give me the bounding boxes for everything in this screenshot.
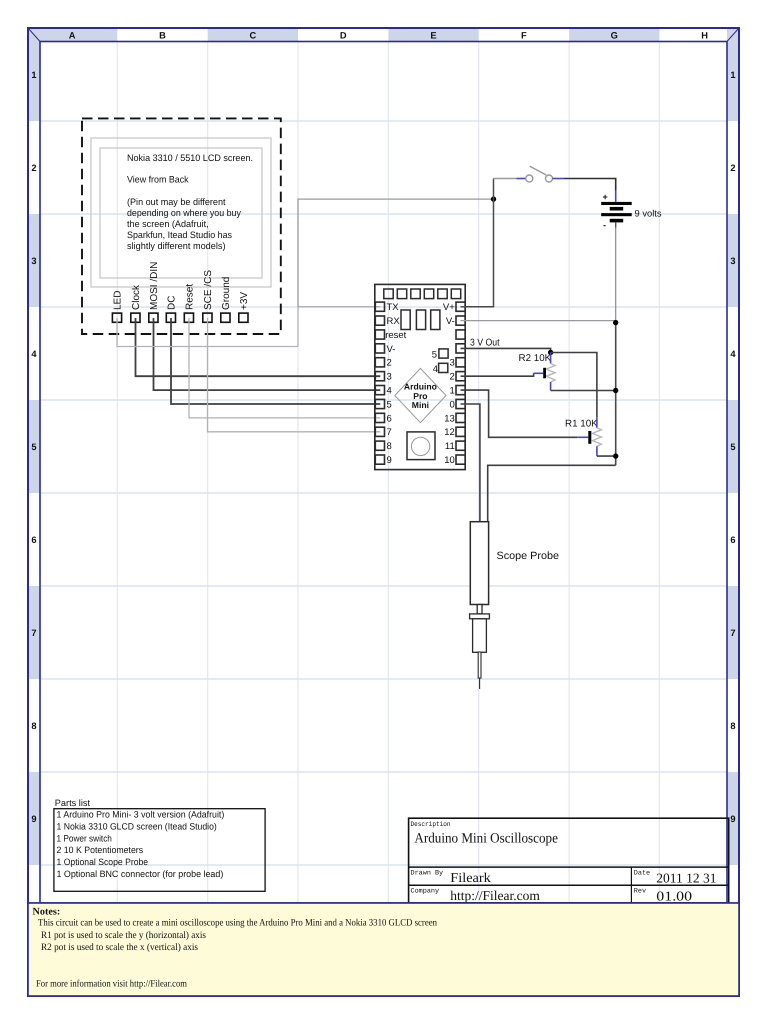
svg-text:13: 13 — [444, 413, 455, 424]
svg-text:5: 5 — [387, 399, 392, 410]
svg-text:9 volts: 9 volts — [635, 208, 662, 219]
svg-text:V-: V- — [446, 316, 455, 327]
svg-text:Mini: Mini — [412, 400, 429, 410]
svg-text:View from Back: View from Back — [127, 174, 189, 185]
svg-text:A: A — [69, 31, 76, 41]
svg-text:Parts list: Parts list — [55, 798, 91, 808]
svg-text:3: 3 — [730, 256, 735, 266]
svg-text:7: 7 — [730, 628, 735, 638]
svg-text:3: 3 — [387, 372, 392, 383]
svg-text:R2 10K: R2 10K — [519, 353, 552, 364]
svg-text:+3V: +3V — [239, 292, 250, 310]
svg-text:4: 4 — [433, 364, 438, 375]
svg-text:6: 6 — [387, 413, 392, 424]
svg-text:4: 4 — [31, 349, 37, 359]
svg-text:5: 5 — [730, 442, 735, 452]
svg-text:01.00: 01.00 — [656, 888, 692, 903]
svg-text:11: 11 — [445, 441, 455, 452]
svg-text:6: 6 — [31, 535, 36, 545]
svg-text:Fileark: Fileark — [450, 870, 491, 885]
svg-text:Date: Date — [634, 870, 650, 878]
svg-text:F: F — [521, 31, 527, 41]
svg-text:LED: LED — [113, 291, 124, 310]
svg-text:2 10 K Potentiometers: 2 10 K Potentiometers — [57, 845, 144, 855]
svg-text:1 Arduino Pro Mini- 3 volt ve: 1 Arduino Pro Mini- 3 volt version (Adaf… — [57, 810, 225, 820]
svg-text:0: 0 — [450, 399, 455, 410]
svg-text:1 Optional BNC connector (for: 1 Optional BNC connector (for probe lead… — [57, 869, 224, 879]
svg-text:Ground: Ground — [221, 277, 232, 310]
svg-text:(Pin out may be different: (Pin out may be different — [127, 196, 226, 207]
svg-text:2: 2 — [387, 358, 392, 369]
svg-text:7: 7 — [387, 427, 392, 438]
svg-text:Nokia 3310 / 5510 LCD screen.: Nokia 3310 / 5510 LCD screen. — [127, 152, 253, 163]
svg-text:Sparkfun, Itead Studio has: Sparkfun, Itead Studio has — [127, 229, 232, 240]
svg-text:1: 1 — [730, 70, 735, 80]
svg-text:D: D — [340, 31, 347, 41]
svg-text:R1 10K: R1 10K — [565, 418, 598, 429]
svg-text:5: 5 — [31, 442, 36, 452]
svg-text:4: 4 — [387, 386, 392, 397]
svg-text:R2 pot is used to scale the x: R2 pot is used to scale the x (vertical)… — [41, 942, 198, 953]
svg-text:3: 3 — [31, 256, 36, 266]
svg-text:Clock: Clock — [131, 284, 142, 310]
svg-text:G: G — [611, 31, 618, 41]
svg-text:V+: V+ — [443, 302, 455, 313]
svg-text:1 Power switch: 1 Power switch — [57, 833, 112, 843]
svg-text:2: 2 — [730, 163, 735, 173]
svg-text:TX: TX — [387, 302, 400, 313]
svg-text:Company: Company — [411, 888, 440, 896]
svg-text:2: 2 — [31, 163, 36, 173]
svg-text:1: 1 — [450, 386, 455, 397]
svg-text:10: 10 — [444, 455, 455, 466]
svg-text:-: - — [603, 220, 606, 230]
svg-text:1 Nokia 3310 GLCD screen (Ite: 1 Nokia 3310 GLCD screen (Itead Studio) — [57, 821, 217, 831]
svg-text:9: 9 — [730, 814, 735, 824]
svg-text:For more information visit htt: For more information visit http://Filear… — [36, 979, 187, 990]
svg-text:Arduino Mini Oscilloscope: Arduino Mini Oscilloscope — [414, 831, 558, 847]
svg-text:4: 4 — [730, 349, 736, 359]
svg-text:+: + — [603, 192, 608, 202]
svg-text:MOSI /DIN: MOSI /DIN — [149, 262, 160, 310]
svg-text:Scope Probe: Scope Probe — [497, 550, 560, 562]
svg-text:Rev: Rev — [634, 888, 646, 896]
svg-text:8: 8 — [31, 721, 36, 731]
svg-text:1 Optional Scope Probe: 1 Optional Scope Probe — [57, 857, 149, 867]
svg-text:Drawn By: Drawn By — [411, 870, 444, 878]
svg-text:the screen (Adafruit,: the screen (Adafruit, — [127, 218, 209, 229]
svg-text:3: 3 — [450, 358, 455, 369]
svg-text:depending on where you buy: depending on where you buy — [127, 207, 241, 218]
svg-text:This circuit can be used to cr: This circuit can be used to create a min… — [38, 918, 437, 929]
svg-text:2011 12 31: 2011 12 31 — [656, 870, 716, 885]
svg-text:1: 1 — [31, 70, 36, 80]
svg-text:E: E — [430, 31, 436, 41]
svg-text:Description: Description — [411, 821, 451, 829]
svg-text:7: 7 — [31, 628, 36, 638]
svg-text:Notes:: Notes: — [33, 907, 61, 918]
svg-text:5: 5 — [432, 350, 437, 361]
svg-text:8: 8 — [730, 721, 735, 731]
svg-text:9: 9 — [387, 455, 392, 466]
svg-text:12: 12 — [444, 427, 455, 438]
svg-text:9: 9 — [31, 814, 36, 824]
svg-text:DC: DC — [167, 296, 178, 310]
svg-text:6: 6 — [730, 535, 735, 545]
svg-text:2: 2 — [450, 372, 455, 383]
svg-text:B: B — [159, 31, 166, 41]
svg-text:H: H — [701, 31, 708, 41]
svg-text:C: C — [249, 31, 256, 41]
svg-text:3 V Out: 3 V Out — [470, 338, 500, 349]
svg-text:http://Filear.com: http://Filear.com — [450, 888, 540, 903]
svg-text:RX: RX — [387, 316, 401, 327]
svg-text:SCE /CS: SCE /CS — [203, 270, 214, 310]
svg-text:V-: V- — [387, 344, 396, 355]
svg-text:8: 8 — [387, 441, 392, 452]
svg-text:R1 pot is used to scale the y: R1 pot is used to scale the y (horizonta… — [41, 930, 206, 941]
svg-text:slightly different models): slightly different models) — [127, 240, 226, 251]
svg-text:reset: reset — [385, 330, 406, 341]
svg-text:Reset: Reset — [185, 284, 196, 310]
